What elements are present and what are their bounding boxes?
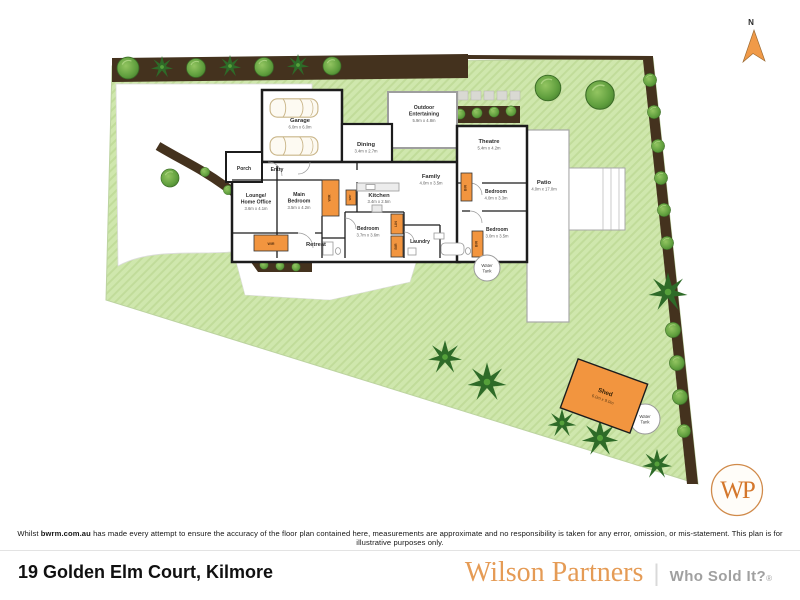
kitchen-island [357, 183, 399, 191]
toilet [465, 248, 470, 255]
svg-text:Porch: Porch [237, 166, 251, 172]
svg-text:3.4m x 2.5m: 3.4m x 2.5m [367, 199, 391, 204]
svg-text:Lounge/: Lounge/ [246, 193, 267, 199]
vanity-basin [434, 233, 444, 239]
disclaimer-text: Whilst bwrm.com.au has made every attemp… [0, 529, 800, 547]
bush-icon [677, 424, 690, 437]
svg-text:3.4m x 2.7m: 3.4m x 2.7m [354, 149, 378, 154]
room-label-porch: Porch [237, 166, 251, 172]
tree-icon [323, 57, 341, 75]
bathtub [441, 243, 464, 255]
car-icon [270, 99, 318, 117]
room-label-theatre: Theatre 5.4m x 4.2m [477, 139, 501, 151]
svg-text:Retreat: Retreat [306, 242, 326, 248]
footer-bar: 19 Golden Elm Court, Kilmore Wilson Part… [0, 551, 800, 600]
kitchen-sink [366, 185, 375, 190]
svg-text:Bedroom: Bedroom [486, 227, 509, 233]
bush-icon [660, 236, 673, 249]
svg-text:Outdoor: Outdoor [414, 105, 434, 111]
svg-text:Theatre: Theatre [479, 139, 501, 145]
svg-text:Family: Family [422, 174, 441, 180]
bush-icon [489, 107, 499, 117]
registered-mark: ® [766, 574, 772, 583]
bush-icon [292, 263, 301, 272]
tree-icon [187, 59, 206, 78]
agency-branding: Wilson Partners | Who Sold It? ® [465, 557, 772, 589]
floor-plan-page: WIR WIP WIR BIR LIN BIR BIR Water Tank W… [0, 0, 800, 600]
room-label-laundry: Laundry [410, 239, 430, 245]
room-label-bedroom-3: Bedroom 3.7m x 3.6m [356, 226, 380, 238]
property-address: 19 Golden Elm Court, Kilmore [18, 562, 273, 583]
svg-text:Patio: Patio [537, 180, 552, 186]
laundry-trough [408, 248, 416, 255]
tree-icon [586, 81, 615, 110]
svg-text:4.0m x 3.3m: 4.0m x 3.3m [484, 196, 508, 201]
bush-icon [654, 171, 667, 184]
agency-tagline: Who Sold It? [670, 568, 766, 585]
bush-icon [665, 322, 680, 337]
svg-text:Entertaining: Entertaining [409, 112, 439, 118]
svg-text:3.6m x 4.1m: 3.6m x 4.1m [244, 206, 268, 211]
room-label-kitchen: Kitchen 3.4m x 2.5m [367, 193, 391, 204]
bush-icon [200, 167, 210, 177]
svg-text:4.0m x 17.0m: 4.0m x 17.0m [531, 187, 557, 192]
brand-divider: | [653, 560, 659, 588]
room-label-garage: Garage 6.0m x 6.0m [288, 118, 312, 130]
tree-icon [161, 169, 179, 187]
svg-text:Bedroom: Bedroom [288, 199, 311, 205]
svg-text:Entry: Entry [271, 167, 284, 173]
room-label-bedroom-4: Bedroom 3.0m x 3.5m [485, 227, 509, 239]
car-icon [270, 137, 318, 155]
wp-logo: WP [712, 465, 763, 516]
svg-text:Tank: Tank [640, 420, 650, 425]
svg-text:Laundry: Laundry [410, 239, 430, 245]
bir-label: BIR [475, 241, 479, 248]
tree-icon [117, 57, 139, 79]
svg-text:3.0m x 3.5m: 3.0m x 3.5m [485, 234, 509, 239]
svg-text:5.4m x 4.2m: 5.4m x 4.2m [477, 146, 501, 151]
site-plan: WIR WIP WIR BIR LIN BIR BIR Water Tank W… [0, 0, 800, 545]
wp-logo-monogram: WP [720, 477, 755, 504]
north-arrow-icon [743, 30, 765, 62]
agency-name: Wilson Partners [465, 557, 644, 589]
disclaimer-site-name: bwrm.com.au [41, 529, 91, 538]
svg-text:Home Office: Home Office [241, 200, 272, 206]
bush-icon [647, 105, 660, 118]
room-label-bedroom-2: Bedroom 4.0m x 3.3m [484, 189, 508, 201]
svg-text:Garage: Garage [290, 118, 311, 124]
bush-icon [669, 355, 684, 370]
north-label: N [748, 18, 754, 27]
svg-text:3.5m x 4.2m: 3.5m x 4.2m [287, 205, 311, 210]
cooktop [372, 205, 382, 212]
room-label-family: Family 4.0m x 3.5m [419, 174, 443, 186]
svg-text:Main: Main [293, 192, 305, 198]
svg-text:Bedroom: Bedroom [485, 189, 508, 195]
bush-icon [506, 106, 516, 116]
svg-text:Water: Water [639, 414, 651, 419]
room-label-retreat: Retreat [306, 242, 326, 248]
svg-text:Water: Water [481, 263, 493, 268]
bush-icon [657, 203, 670, 216]
wir-label: WIR [328, 194, 332, 201]
svg-text:Tank: Tank [482, 269, 492, 274]
svg-text:3.7m x 3.6m: 3.7m x 3.6m [356, 233, 380, 238]
tree-icon [255, 58, 274, 77]
room-label-dining: Dining 3.4m x 2.7m [354, 142, 378, 154]
tree-icon [535, 75, 561, 101]
wir-label: WIR [268, 242, 275, 246]
bush-icon [472, 108, 482, 118]
svg-text:Bedroom: Bedroom [357, 226, 380, 232]
bir-label: BIR [394, 243, 398, 250]
room-label-entry: Entry [271, 167, 284, 173]
stepping-stones [458, 91, 520, 100]
svg-text:5.9m x 4.8m: 5.9m x 4.8m [412, 118, 436, 123]
svg-text:Dining: Dining [357, 142, 375, 148]
toilet [335, 248, 340, 255]
svg-text:6.0m x 6.0m: 6.0m x 6.0m [288, 125, 312, 130]
north-arrow: N [743, 18, 765, 62]
bush-icon [643, 73, 656, 86]
bush-icon [672, 389, 687, 404]
wip-label: WIP [348, 195, 352, 201]
water-tank: Water Tank [474, 255, 500, 281]
bir-label: BIR [464, 185, 468, 192]
svg-text:4.0m x 3.5m: 4.0m x 3.5m [419, 181, 443, 186]
bush-icon [651, 139, 664, 152]
linen-label: LIN [394, 221, 398, 227]
